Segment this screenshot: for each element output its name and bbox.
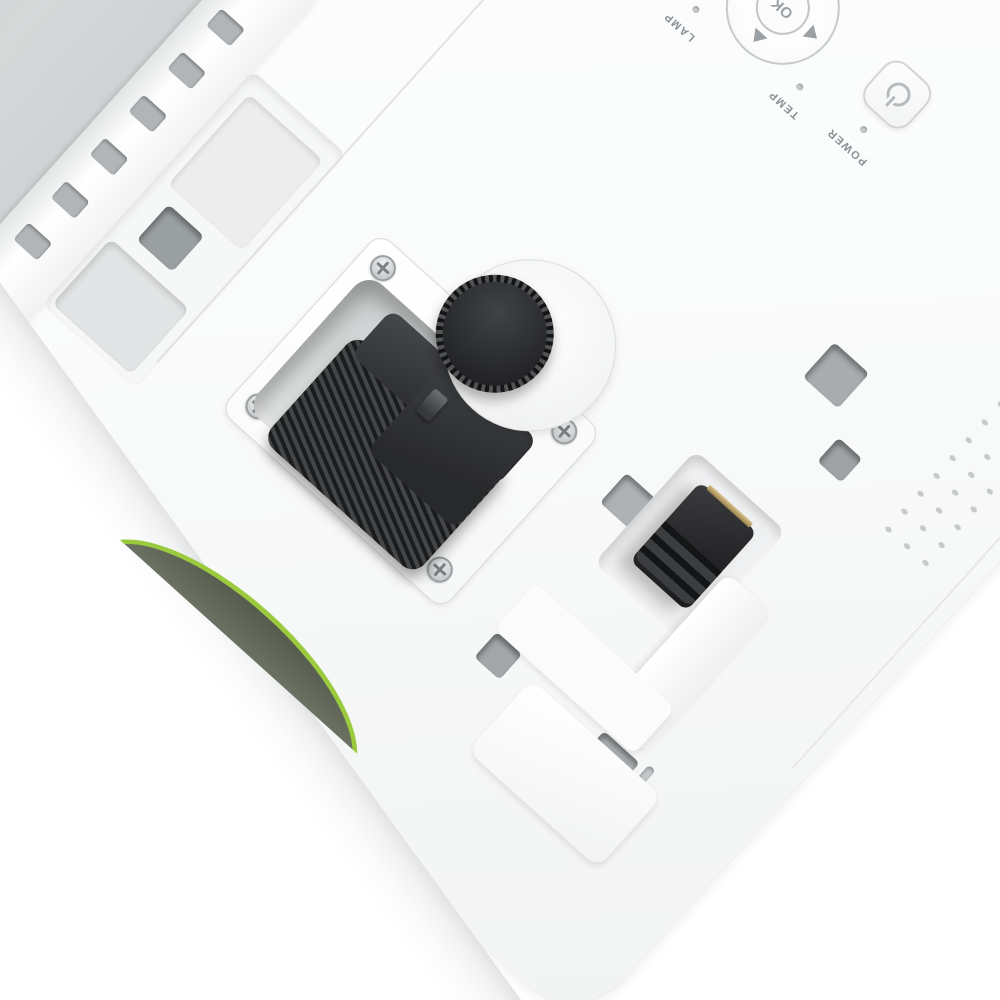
power-icon [879, 76, 916, 113]
vent-slot [167, 51, 206, 90]
vent-slot [51, 181, 90, 220]
vent-slot [13, 222, 52, 261]
vent-slot [90, 138, 129, 177]
projector-body-scene: OK LAMP TEMP POWER [0, 0, 1000, 1000]
ok-button-label: OK [768, 0, 797, 22]
vent-slot [206, 8, 245, 47]
product-photo-projector: OK LAMP TEMP POWER [0, 0, 1000, 1000]
vent-slot [128, 94, 167, 133]
